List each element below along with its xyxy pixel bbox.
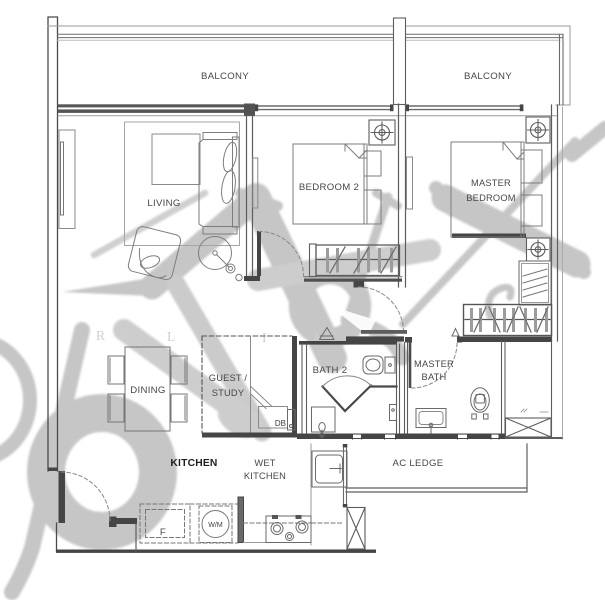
- svg-text:L: L: [167, 329, 175, 344]
- svg-text:R: R: [96, 328, 105, 343]
- svg-text:BATH 2: BATH 2: [313, 365, 348, 376]
- svg-text:DINING: DINING: [130, 385, 165, 396]
- svg-text:KITCHEN: KITCHEN: [244, 471, 286, 481]
- svg-text:MASTER: MASTER: [471, 178, 511, 188]
- svg-text:W/M: W/M: [208, 522, 223, 529]
- svg-text:BEDROOM 2: BEDROOM 2: [299, 182, 359, 193]
- svg-text:LIVING: LIVING: [147, 198, 180, 209]
- svg-text:BALCONY: BALCONY: [464, 71, 512, 82]
- svg-text:WET: WET: [254, 458, 275, 468]
- svg-text:KITCHEN: KITCHEN: [170, 458, 217, 469]
- svg-text:AC LEDGE: AC LEDGE: [393, 458, 444, 469]
- svg-text:BALCONY: BALCONY: [201, 71, 249, 82]
- svg-text:F: F: [160, 527, 166, 538]
- svg-text:BEDROOM: BEDROOM: [466, 193, 515, 203]
- svg-text:BATH: BATH: [422, 372, 447, 382]
- svg-text:J: J: [120, 328, 125, 343]
- svg-text:MASTER: MASTER: [414, 359, 454, 369]
- svg-text:STUDY: STUDY: [212, 388, 245, 398]
- svg-text:GUEST /: GUEST /: [209, 373, 248, 383]
- svg-text:I: I: [262, 330, 267, 345]
- svg-text:DB: DB: [275, 419, 286, 428]
